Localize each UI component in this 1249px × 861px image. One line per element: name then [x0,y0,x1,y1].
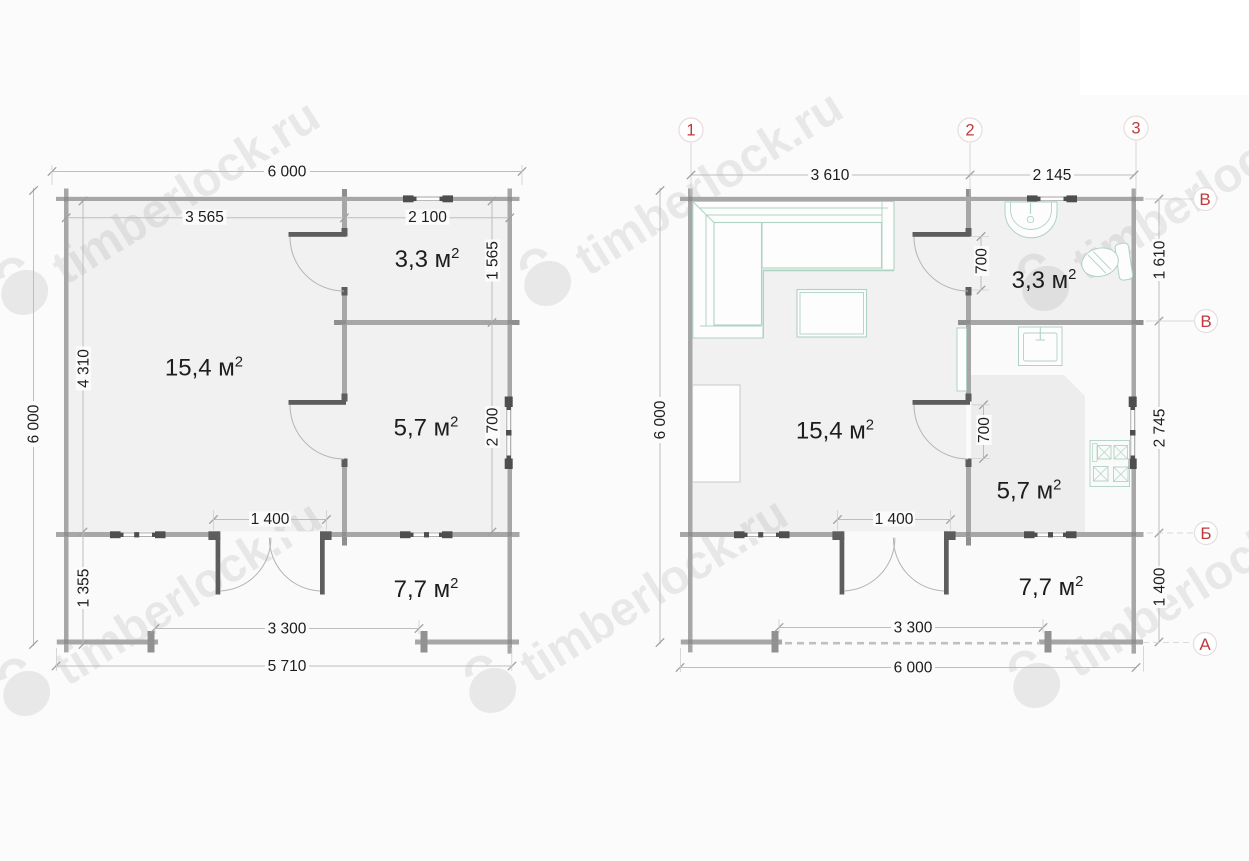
svg-text:1 565: 1 565 [485,241,502,280]
svg-text:6 000: 6 000 [268,164,307,181]
svg-text:1 355: 1 355 [76,569,93,608]
svg-text:Б: Б [1200,524,1211,543]
svg-text:15,4 м2: 15,4 м2 [165,354,243,381]
svg-text:3,3 м2: 3,3 м2 [395,246,460,273]
svg-text:В: В [1200,312,1211,331]
svg-text:3 565: 3 565 [185,209,224,226]
svg-text:7,7 м2: 7,7 м2 [394,576,459,603]
svg-text:5,7 м2: 5,7 м2 [394,414,459,441]
svg-text:1 400: 1 400 [1152,567,1169,606]
svg-text:1 610: 1 610 [1152,240,1169,279]
svg-text:6 000: 6 000 [894,660,933,677]
svg-text:6 000: 6 000 [652,400,669,439]
svg-text:А: А [1199,635,1211,654]
svg-text:15,4 м2: 15,4 м2 [796,417,874,444]
svg-text:В: В [1199,190,1210,209]
svg-text:6 000: 6 000 [26,404,43,443]
svg-text:3 300: 3 300 [894,620,933,637]
svg-text:5,7 м2: 5,7 м2 [997,477,1062,504]
svg-text:3 300: 3 300 [268,621,307,638]
svg-text:2 745: 2 745 [1152,409,1169,448]
svg-text:2 145: 2 145 [1033,167,1072,184]
svg-text:1 400: 1 400 [251,511,290,528]
svg-text:1: 1 [686,122,695,140]
svg-text:7,7 м2: 7,7 м2 [1019,574,1084,601]
svg-text:5 710: 5 710 [268,658,307,675]
svg-text:2 100: 2 100 [408,209,447,226]
svg-text:3: 3 [1131,120,1140,138]
svg-text:3 610: 3 610 [811,167,850,184]
svg-text:3,3 м2: 3,3 м2 [1012,267,1077,294]
svg-text:2 700: 2 700 [485,407,502,446]
svg-text:1 400: 1 400 [875,511,914,528]
svg-text:2: 2 [965,122,974,140]
svg-text:700: 700 [974,248,991,274]
svg-text:4 310: 4 310 [76,349,93,388]
svg-text:700: 700 [976,417,993,443]
